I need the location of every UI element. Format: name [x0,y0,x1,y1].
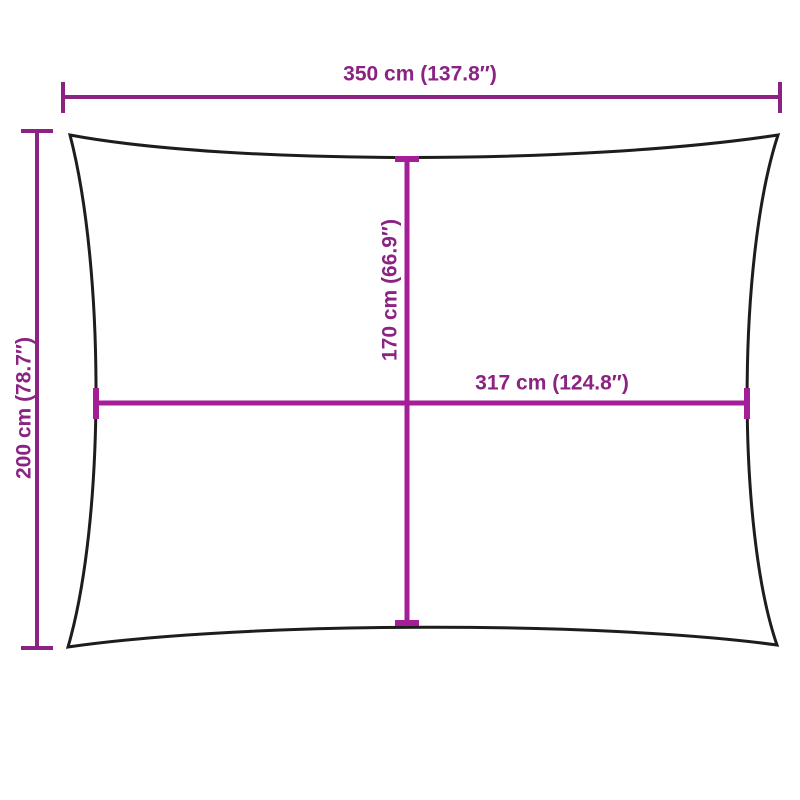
height-left-dimension-label: 200 cm (78.7″) [14,337,35,479]
product-dimension-diagram: 350 cm (137.8″) 200 cm (78.7″) 170 cm (6… [0,0,800,800]
width-top-dimension [63,82,780,113]
width-top-dimension-label: 350 cm (137.8″) [343,64,497,85]
width-center-dimension [96,388,747,419]
width-center-dimension-label: 317 cm (124.8″) [475,373,629,394]
diagram-graphics [0,0,800,800]
sail-outline [68,135,778,647]
height-center-dimension-label: 170 cm (66.9″) [380,219,401,361]
